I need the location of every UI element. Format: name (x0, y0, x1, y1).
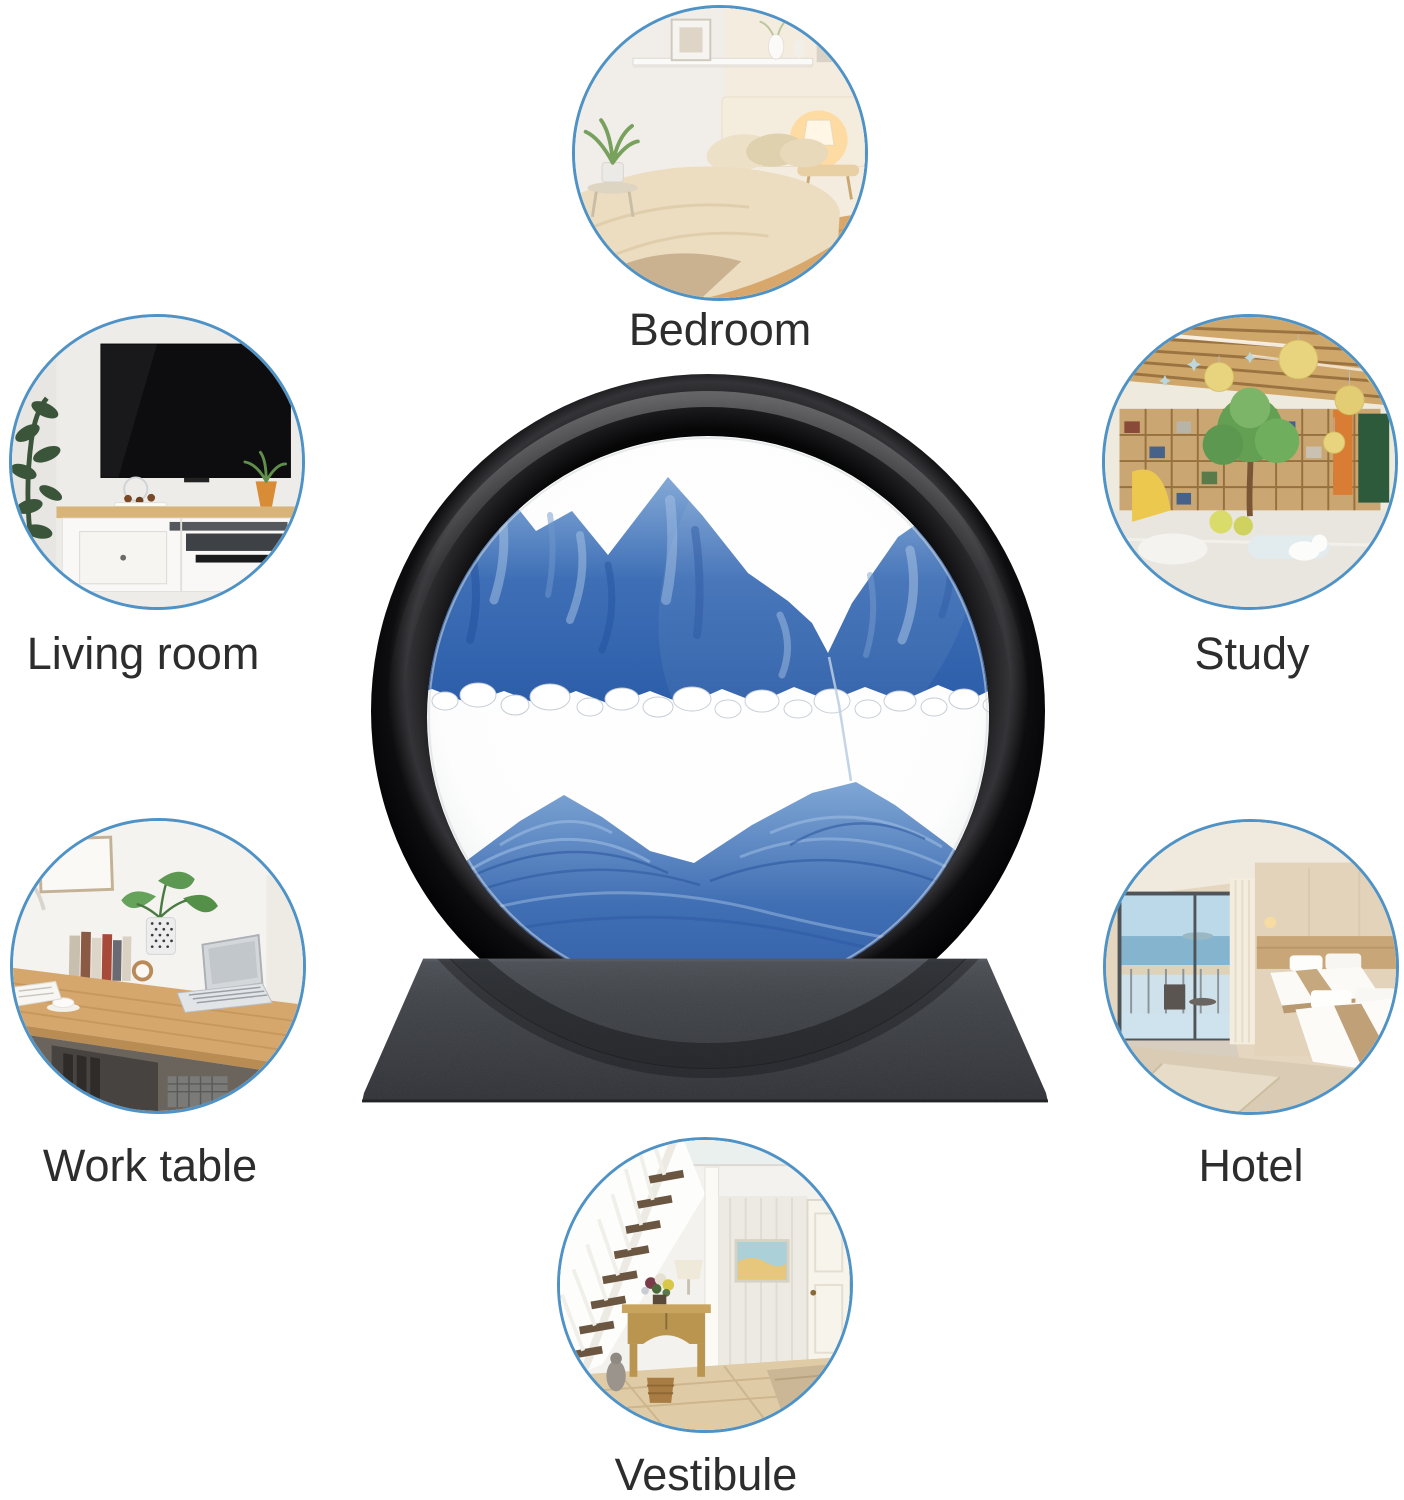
study-photo (1102, 314, 1398, 610)
study-illustration (1105, 317, 1395, 607)
bedroom-photo (572, 5, 868, 301)
vestibule-photo (557, 1137, 853, 1433)
work-table-photo (10, 818, 306, 1114)
hotel-label: Hotel (1198, 1143, 1303, 1188)
work-table-label: Work table (43, 1143, 257, 1188)
sand-art-product (350, 365, 1060, 1110)
product-usage-collage: Bedroom (0, 0, 1404, 1500)
bedroom-illustration (575, 8, 865, 298)
hotel-illustration (1106, 822, 1396, 1112)
sand-art-illustration (350, 365, 1060, 1110)
living-room-illustration (12, 317, 302, 607)
study-label: Study (1194, 631, 1309, 676)
hotel-photo (1103, 819, 1399, 1115)
bedroom-label: Bedroom (629, 307, 812, 352)
vestibule-label: Vestibule (615, 1452, 798, 1497)
living-room-photo (9, 314, 305, 610)
vestibule-illustration (560, 1140, 850, 1430)
work-table-illustration (13, 821, 303, 1111)
living-room-label: Living room (27, 631, 260, 676)
